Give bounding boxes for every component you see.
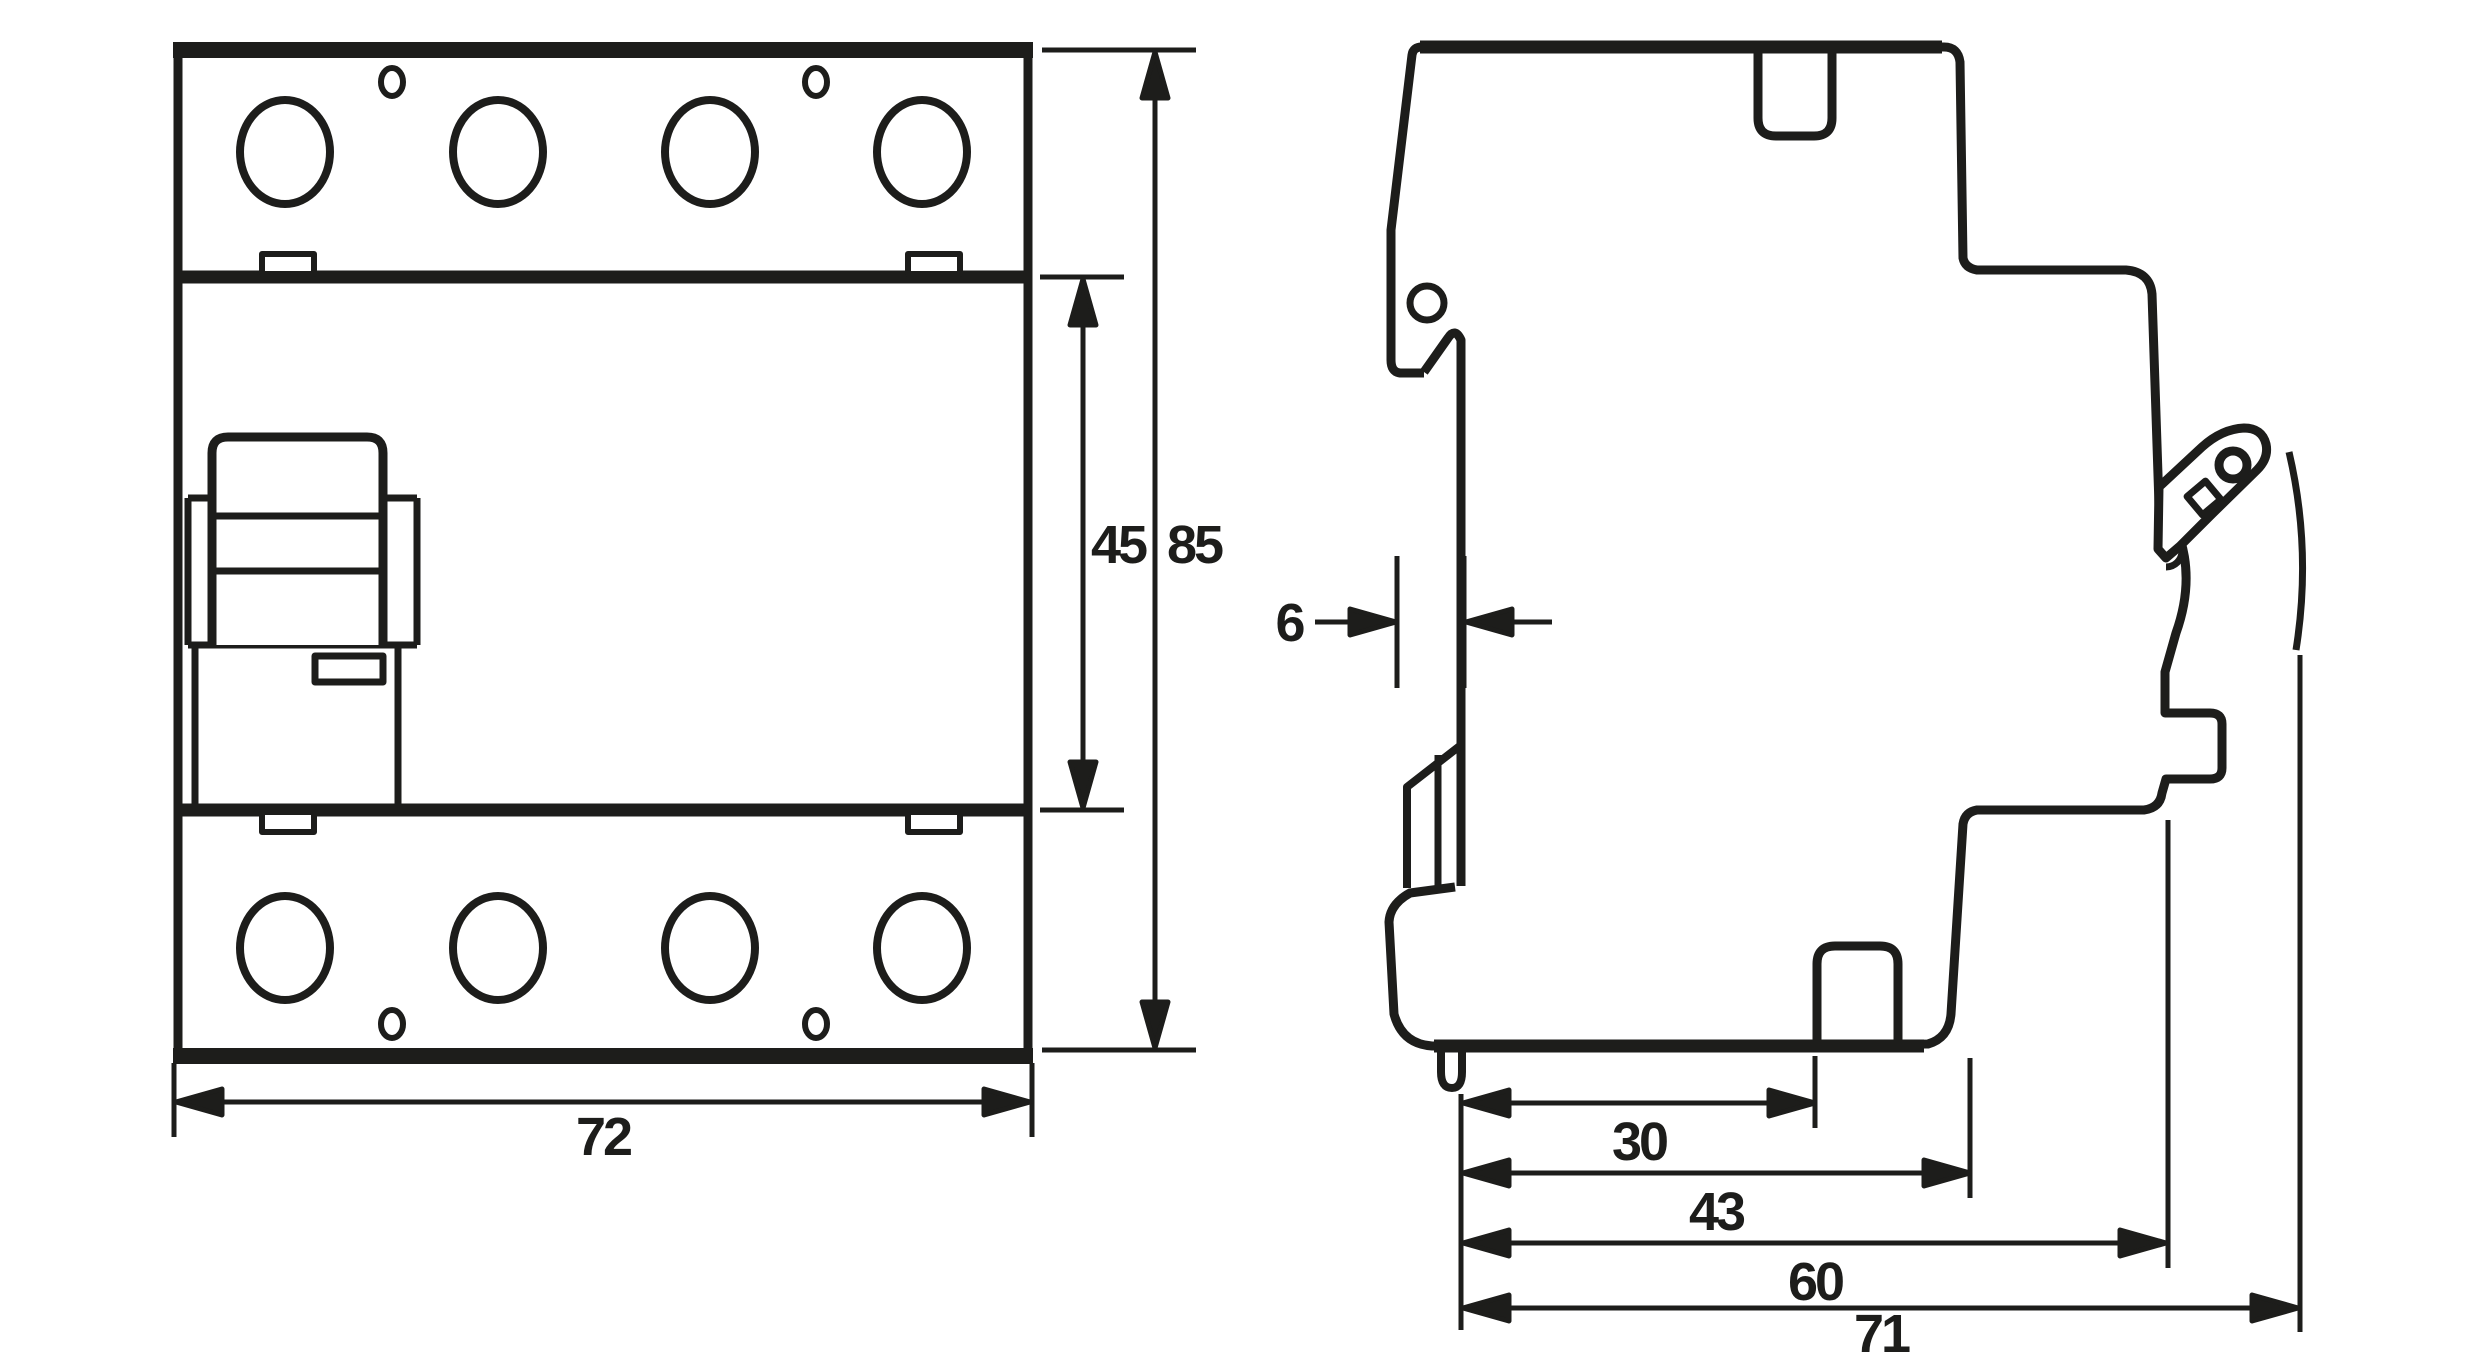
- seal-tab-top-right: [908, 254, 960, 274]
- arrow-right-icon: [1924, 1160, 1970, 1186]
- label-window: [315, 656, 383, 682]
- terminal-hole: [453, 896, 543, 1000]
- arrow-left-icon: [1463, 1090, 1509, 1116]
- seal-tab-top-left: [262, 254, 314, 274]
- side-screw-hole: [1410, 286, 1444, 320]
- bottom-notch: [1817, 946, 1898, 1041]
- terminal-hole: [877, 896, 967, 1000]
- terminal-hole: [665, 100, 755, 204]
- screw-hole: [805, 1010, 827, 1038]
- dimension-drawing: 45 85 72 6 30 43 60: [0, 0, 2480, 1355]
- screw-hole: [805, 68, 827, 96]
- terminal-hole: [240, 100, 330, 204]
- toggle-lever-side: [2158, 428, 2267, 558]
- dim-label-body-height: 45: [1091, 515, 1147, 575]
- arrow-right-icon: [984, 1089, 1030, 1115]
- top-slot: [1758, 53, 1832, 136]
- toggle-lever-front: [212, 437, 383, 645]
- din-clip-tab: [1407, 745, 1461, 888]
- seal-tab-bottom-right: [908, 812, 960, 832]
- terminal-hole: [877, 100, 967, 204]
- arrow-right-icon: [1769, 1090, 1815, 1116]
- screw-hole: [381, 68, 403, 96]
- arrow-down-icon: [1142, 1002, 1168, 1048]
- arrow-left-icon: [1466, 609, 1512, 635]
- arrow-down-icon: [1070, 762, 1096, 808]
- arrow-up-icon: [1142, 52, 1168, 98]
- lever-hole: [2219, 451, 2247, 479]
- terminal-hole: [453, 100, 543, 204]
- dim-label-depth-71: 71: [1854, 1304, 1910, 1355]
- drawing-sheet: 45 85 72 6 30 43 60: [0, 0, 2480, 1355]
- arrow-left-icon: [176, 1089, 222, 1115]
- arrow-right-icon: [2252, 1295, 2298, 1321]
- switch-assembly-front: [188, 437, 417, 810]
- arrow-up-icon: [1070, 279, 1096, 325]
- side-outline: [1389, 47, 2222, 1046]
- dimensions-side: 6 30 43 60 71: [1275, 556, 2300, 1355]
- arrow-right-icon: [1350, 609, 1396, 635]
- terminal-holes-top: [240, 68, 967, 204]
- screw-hole: [381, 1010, 403, 1038]
- dim-label-rail-recess: 6: [1275, 593, 1304, 653]
- lever-swing-arc: [2289, 452, 2303, 650]
- front-view: [173, 50, 1033, 1056]
- arrow-right-icon: [2120, 1230, 2166, 1256]
- din-foot-pin: [1441, 1050, 1462, 1088]
- terminal-hole: [240, 896, 330, 1000]
- switch-housing-block: [195, 645, 398, 810]
- seal-tab-bottom-left: [262, 812, 314, 832]
- terminal-hole: [665, 896, 755, 1000]
- arrow-left-icon: [1463, 1230, 1509, 1256]
- dim-label-depth-43: 43: [1689, 1182, 1745, 1242]
- dim-label-depth-30: 30: [1612, 1112, 1667, 1172]
- terminal-holes-bottom: [240, 896, 967, 1038]
- dim-label-depth-60: 60: [1788, 1252, 1843, 1312]
- arrow-left-icon: [1463, 1160, 1509, 1186]
- dim-label-total-height: 85: [1167, 515, 1223, 575]
- din-claw-and-seat-face: [1424, 333, 1461, 886]
- arrow-left-icon: [1463, 1295, 1509, 1321]
- dim-label-width: 72: [576, 1107, 631, 1167]
